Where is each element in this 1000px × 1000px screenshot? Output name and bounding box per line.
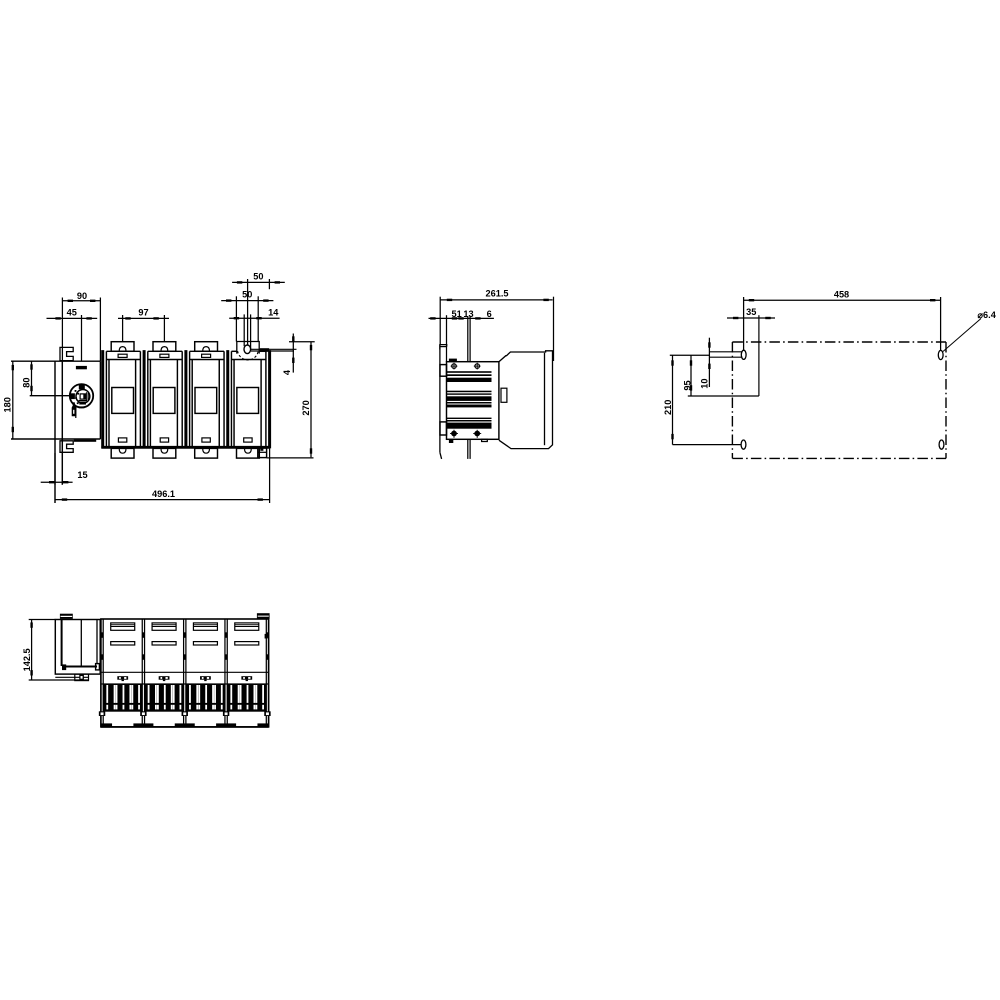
svg-text:50: 50 [253,272,263,282]
svg-text:180: 180 [3,397,13,412]
svg-text:261.5: 261.5 [486,288,509,298]
svg-text:458: 458 [834,289,849,299]
svg-text:14: 14 [268,307,279,317]
svg-text:45: 45 [67,308,77,318]
svg-text:15: 15 [77,470,87,480]
svg-text:⌀6.4: ⌀6.4 [978,310,997,320]
svg-text:95: 95 [683,380,693,390]
svg-text:496.1: 496.1 [152,489,175,499]
svg-text:210: 210 [663,400,673,415]
svg-text:51: 51 [451,309,461,319]
svg-text:142.5: 142.5 [22,648,32,671]
svg-text:4: 4 [282,369,292,375]
svg-text:13: 13 [463,309,473,319]
svg-text:50: 50 [242,290,252,300]
svg-text:80: 80 [21,377,31,387]
svg-text:35: 35 [746,307,756,317]
svg-text:90: 90 [77,291,87,301]
svg-text:270: 270 [301,400,311,415]
svg-text:97: 97 [138,308,148,318]
svg-text:10: 10 [699,378,709,388]
svg-text:6: 6 [487,309,492,319]
